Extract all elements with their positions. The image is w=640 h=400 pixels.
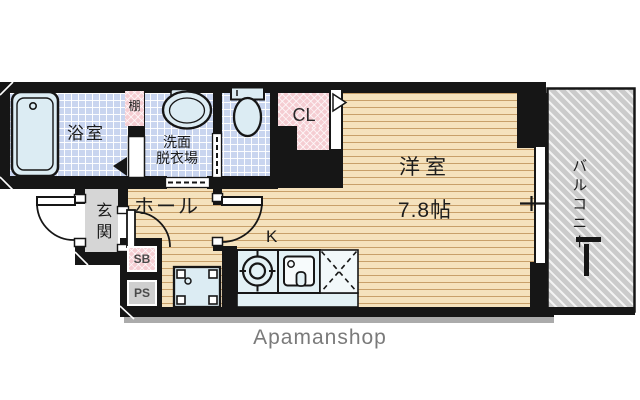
shelf-label: 棚 [125, 100, 144, 114]
kitchen-counter [237, 250, 358, 307]
pipe-space-label: PS [134, 286, 150, 300]
western-room-size: 7.8帖 [363, 199, 487, 223]
washroom-label-line1: 洗面 [163, 134, 191, 150]
bathroom-label: 浴室 [46, 124, 126, 144]
entrance-door [37, 195, 86, 247]
brand-watermark: Apamanshop [200, 326, 440, 350]
refrigerator-space [320, 250, 358, 293]
western-room-label: 洋室 [363, 156, 487, 180]
balcony-label: バルコニー [570, 115, 587, 295]
wall-shadow [124, 317, 554, 323]
balcony-outline [548, 89, 635, 312]
toilet [231, 88, 264, 137]
washing-machine-pan [174, 267, 220, 307]
closet-door [330, 89, 346, 150]
room-door [213, 194, 263, 246]
closet-label: CL [281, 105, 327, 126]
washroom-label-line2: 脱衣場 [156, 150, 198, 166]
hall-label: ホール [121, 196, 213, 219]
shoe-box: SB [127, 246, 157, 272]
washroom-sliding-door [166, 178, 210, 188]
floorplan-canvas: 浴室 棚 洗面 脱衣場 CL 洋室 7.8帖 ホール 玄関 K SB PS バル… [0, 0, 640, 400]
entrance-label: 玄関 [92, 194, 110, 252]
wash-basin [163, 90, 211, 129]
balcony-window [520, 146, 546, 264]
kitchen-label: K [266, 227, 277, 247]
pipe-space: PS [127, 280, 157, 306]
kitchen-sink [284, 257, 314, 287]
shelf-area: 棚 [125, 91, 144, 126]
shoe-box-label: SB [134, 252, 151, 266]
